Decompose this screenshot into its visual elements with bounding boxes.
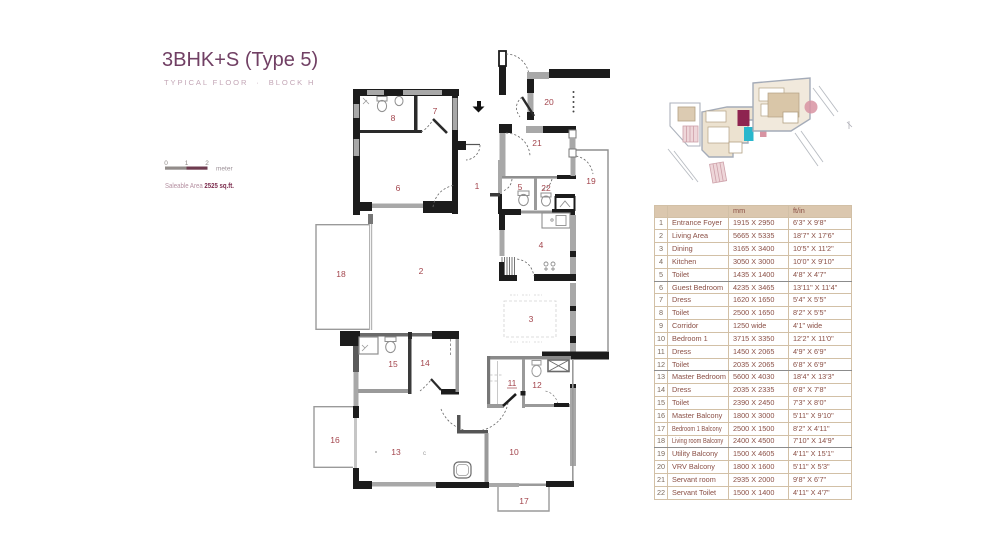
svg-text:2: 2 bbox=[205, 160, 209, 167]
svg-text:6: 6 bbox=[396, 183, 401, 193]
svg-text:18: 18 bbox=[336, 269, 346, 279]
svg-text:1: 1 bbox=[475, 181, 480, 191]
svg-text:0: 0 bbox=[164, 160, 168, 167]
svg-text:c: c bbox=[423, 451, 426, 457]
svg-text:10: 10 bbox=[509, 447, 519, 457]
svg-text:13: 13 bbox=[391, 447, 401, 457]
svg-text:7: 7 bbox=[433, 106, 438, 116]
svg-text:meter: meter bbox=[216, 166, 233, 173]
svg-text:Saleable Area 2525 sq.ft.: Saleable Area 2525 sq.ft. bbox=[165, 181, 234, 190]
svg-text:12: 12 bbox=[532, 380, 542, 390]
svg-text:15: 15 bbox=[388, 359, 398, 369]
svg-text:14: 14 bbox=[420, 358, 430, 368]
svg-text:11: 11 bbox=[508, 378, 517, 388]
svg-text:3: 3 bbox=[529, 314, 534, 324]
svg-text:5: 5 bbox=[518, 182, 523, 192]
svg-text:8: 8 bbox=[391, 113, 396, 123]
svg-text:2: 2 bbox=[419, 266, 424, 276]
svg-text:22: 22 bbox=[541, 183, 551, 193]
svg-text:21: 21 bbox=[532, 138, 542, 148]
svg-text:4: 4 bbox=[539, 240, 544, 250]
svg-text:17: 17 bbox=[519, 496, 529, 506]
svg-text:19: 19 bbox=[586, 176, 596, 186]
svg-text:16: 16 bbox=[330, 435, 340, 445]
svg-text:1: 1 bbox=[185, 160, 189, 167]
svg-text:20: 20 bbox=[544, 97, 554, 107]
